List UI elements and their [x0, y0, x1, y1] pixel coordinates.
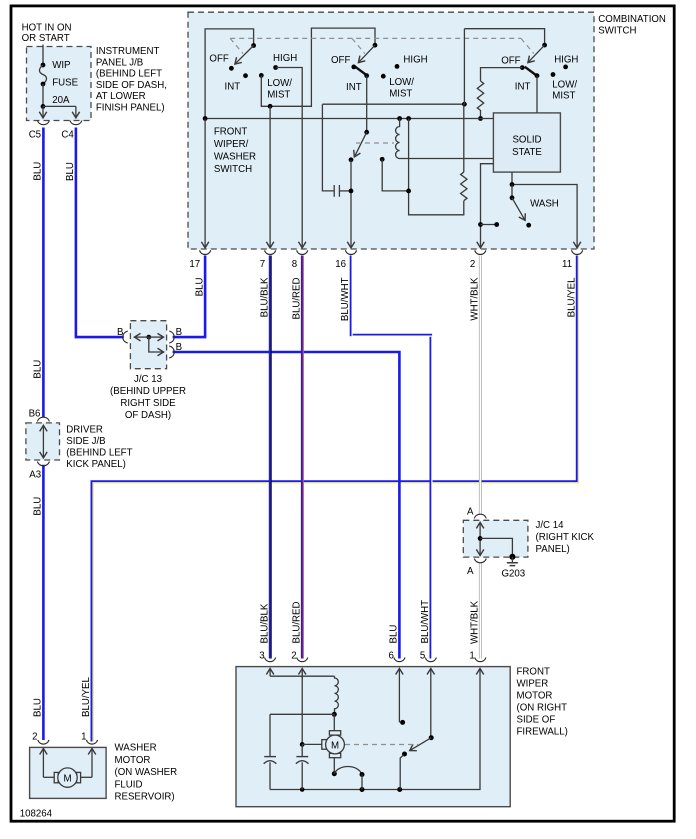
svg-text:J/C 14: J/C 14: [536, 520, 565, 531]
svg-text:FRONT: FRONT: [214, 127, 247, 138]
svg-text:MIST: MIST: [389, 88, 412, 99]
svg-text:FINISH PANEL): FINISH PANEL): [96, 102, 165, 113]
svg-text:BLU/WHT: BLU/WHT: [340, 277, 351, 321]
svg-text:WASH: WASH: [530, 199, 559, 210]
svg-text:MOTOR: MOTOR: [517, 690, 553, 701]
svg-text:16: 16: [335, 259, 346, 270]
svg-text:SIDE J/B: SIDE J/B: [66, 436, 105, 447]
svg-text:HIGH: HIGH: [403, 55, 427, 66]
svg-text:STATE: STATE: [512, 147, 542, 158]
svg-text:FRONT: FRONT: [517, 666, 550, 677]
svg-text:WHT/BLK: WHT/BLK: [470, 600, 481, 644]
svg-text:2: 2: [291, 651, 296, 662]
svg-text:DRIVER: DRIVER: [66, 424, 103, 435]
svg-text:BLU/BLK: BLU/BLK: [259, 277, 270, 317]
svg-text:HIGH: HIGH: [273, 53, 297, 64]
svg-text:3: 3: [259, 651, 264, 662]
svg-text:WHT/BLK: WHT/BLK: [470, 277, 481, 321]
svg-text:WASHER: WASHER: [115, 743, 157, 754]
svg-text:G203: G203: [502, 569, 526, 580]
svg-text:BLU: BLU: [33, 360, 44, 379]
svg-text:M: M: [63, 773, 71, 784]
svg-text:J/C 13: J/C 13: [134, 374, 162, 385]
svg-text:MOTOR: MOTOR: [115, 755, 151, 766]
svg-text:BLU: BLU: [194, 278, 205, 297]
svg-text:OFF: OFF: [501, 56, 520, 67]
svg-text:BLU/BLK: BLU/BLK: [259, 603, 270, 643]
svg-text:A: A: [467, 566, 474, 577]
svg-text:1: 1: [469, 651, 474, 662]
svg-text:(BEHIND LEFT: (BEHIND LEFT: [66, 447, 132, 458]
svg-text:BLU/RED: BLU/RED: [291, 278, 302, 320]
svg-text:B: B: [176, 342, 182, 353]
svg-text:B6: B6: [29, 409, 41, 420]
svg-text:SIDE OF: SIDE OF: [517, 714, 556, 725]
svg-text:BLU: BLU: [65, 162, 76, 181]
svg-text:INT: INT: [225, 81, 241, 92]
svg-text:WIPER: WIPER: [517, 678, 549, 689]
svg-text:BLU: BLU: [33, 497, 44, 516]
svg-text:(RIGHT KICK: (RIGHT KICK: [536, 532, 595, 543]
svg-text:FUSE: FUSE: [52, 78, 78, 89]
svg-text:A3: A3: [29, 469, 41, 480]
svg-text:1: 1: [81, 732, 86, 743]
svg-text:SWITCH: SWITCH: [598, 26, 636, 37]
svg-text:PANEL J/B: PANEL J/B: [96, 57, 143, 68]
svg-text:PANEL): PANEL): [536, 544, 570, 555]
svg-text:FIREWALL): FIREWALL): [517, 726, 568, 737]
svg-text:WIP: WIP: [52, 60, 70, 71]
svg-text:108264: 108264: [20, 808, 53, 819]
svg-text:MIST: MIST: [552, 91, 575, 102]
svg-text:INSTRUMENT: INSTRUMENT: [96, 46, 160, 57]
svg-text:SIDE OF DASH,: SIDE OF DASH,: [96, 80, 167, 91]
svg-text:B: B: [117, 327, 123, 338]
svg-text:INT: INT: [346, 82, 362, 93]
svg-text:AT LOWER: AT LOWER: [96, 91, 146, 102]
svg-text:SWITCH: SWITCH: [214, 164, 252, 175]
svg-text:BLU: BLU: [389, 625, 400, 644]
svg-text:20A: 20A: [52, 95, 70, 106]
svg-text:OF DASH): OF DASH): [125, 410, 171, 421]
svg-text:2: 2: [32, 732, 37, 743]
svg-text:BLU/WHT: BLU/WHT: [420, 600, 431, 644]
svg-text:HIGH: HIGH: [554, 55, 578, 66]
svg-text:17: 17: [189, 259, 200, 270]
svg-text:INT: INT: [515, 81, 531, 92]
svg-text:SOLID: SOLID: [512, 134, 541, 145]
svg-text:(ON RIGHT: (ON RIGHT: [517, 702, 568, 713]
svg-text:5: 5: [420, 651, 425, 662]
svg-text:BLU: BLU: [33, 162, 44, 181]
svg-text:BLU/RED: BLU/RED: [291, 602, 302, 644]
svg-text:BLU: BLU: [33, 698, 44, 717]
svg-text:OFF: OFF: [209, 54, 228, 65]
svg-text:6: 6: [389, 651, 394, 662]
svg-text:C5: C5: [29, 130, 41, 141]
svg-text:(BEHIND UPPER: (BEHIND UPPER: [110, 386, 186, 397]
svg-text:(ON WASHER: (ON WASHER: [115, 767, 178, 778]
svg-text:OR START: OR START: [22, 33, 70, 44]
svg-text:2: 2: [470, 259, 475, 270]
svg-text:LOW/: LOW/: [552, 80, 577, 91]
svg-text:WIPER/: WIPER/: [214, 139, 249, 150]
svg-text:WASHER: WASHER: [214, 152, 256, 163]
svg-text:7: 7: [260, 259, 265, 270]
svg-text:BLU/YEL: BLU/YEL: [81, 677, 92, 717]
svg-text:KICK PANEL): KICK PANEL): [66, 459, 126, 470]
svg-text:LOW/: LOW/: [389, 77, 414, 88]
svg-text:MIST: MIST: [267, 89, 290, 100]
svg-text:A: A: [467, 507, 474, 518]
svg-text:C4: C4: [61, 130, 74, 141]
svg-text:BLU/YEL: BLU/YEL: [566, 277, 577, 317]
svg-text:RIGHT SIDE: RIGHT SIDE: [120, 398, 176, 409]
svg-text:LOW/: LOW/: [267, 78, 292, 89]
svg-text:8: 8: [292, 259, 297, 270]
svg-text:RESERVOIR): RESERVOIR): [115, 792, 175, 803]
svg-text:HOT IN ON: HOT IN ON: [22, 23, 72, 34]
svg-text:M: M: [331, 740, 339, 751]
svg-text:11: 11: [562, 259, 572, 270]
svg-text:(BEHIND LEFT: (BEHIND LEFT: [96, 69, 162, 80]
svg-text:OFF: OFF: [331, 55, 350, 66]
svg-text:COMBINATION: COMBINATION: [598, 14, 666, 25]
svg-text:B: B: [176, 327, 182, 338]
svg-text:FLUID: FLUID: [115, 779, 143, 790]
